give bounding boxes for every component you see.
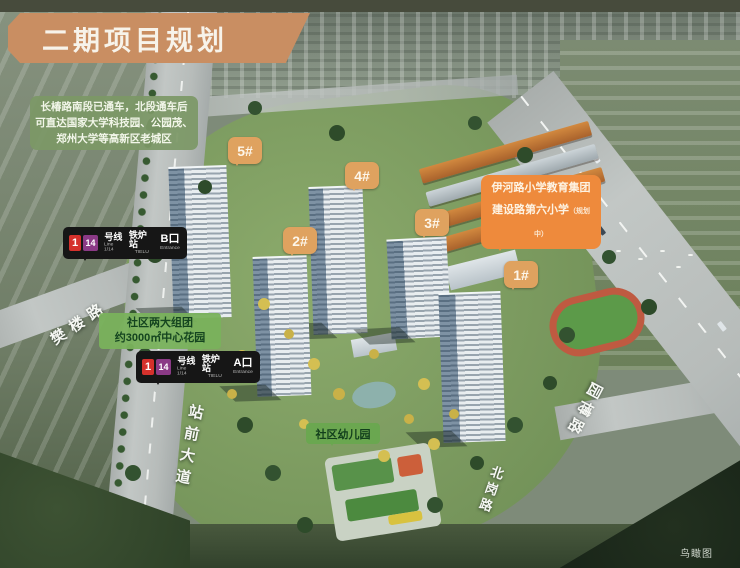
building-number: 4# — [354, 168, 370, 184]
metro-exit-b-label: 1 14 号线Line 1/14 铁炉站TIELU B口Entrance — [63, 227, 187, 259]
garden-callout-line1: 社区两大组团 — [99, 316, 221, 331]
school-callout: 伊河路小学教育集团 建设路第六小学（规划中） — [481, 175, 601, 249]
garden-callout: 社区两大组团 约3000㎡中心花园 — [99, 313, 221, 349]
kindergarten-building — [324, 442, 442, 542]
metro-station-en: TIELU — [207, 374, 221, 379]
kindergarten-roof — [331, 456, 394, 491]
metro-line-cn: 号线 — [177, 357, 195, 366]
metro-exit-en: Entrance — [233, 370, 253, 375]
building-number: 3# — [424, 215, 440, 231]
school-callout-line1: 伊河路小学教育集团 — [487, 181, 595, 197]
building-label-5: 5# — [228, 137, 262, 164]
page-title: 二期项目规划 — [8, 19, 228, 58]
tower-1 — [438, 291, 505, 443]
birds — [616, 250, 621, 252]
metro-line-en: Line 1/14 — [177, 367, 196, 377]
tower-2 — [253, 255, 312, 397]
metro-exit-cn: A口 — [234, 358, 253, 370]
metro-exit-cn: B口 — [161, 234, 180, 246]
view-caption: 鸟瞰图 — [680, 545, 713, 560]
callout-line: 郑州大学等高新区老城区 — [30, 131, 198, 147]
metro-station-en: TIELU — [134, 250, 148, 255]
aerial-view: 二期项目规划 长椿路南段已通车，北段通车后 可直达国家大学科技园、公园茂、 郑州… — [0, 0, 740, 568]
trees-autumn — [0, 0, 8, 8]
road-access-callout: 长椿路南段已通车，北段通车后 可直达国家大学科技园、公园茂、 郑州大学等高新区老… — [30, 96, 198, 150]
metro-line-cn: 号线 — [104, 233, 122, 242]
metro-line-en: Line 1/14 — [104, 243, 123, 253]
building-label-3: 3# — [415, 209, 449, 236]
building-number: 5# — [237, 143, 253, 159]
building-number: 1# — [513, 267, 529, 283]
metro-station-cn: 铁炉站 — [202, 355, 227, 374]
metro-exit-a-label: 1 14 号线Line 1/14 铁炉站TIELU A口Entrance — [136, 351, 260, 383]
building-label-4: 4# — [345, 162, 379, 189]
kindergarten-roof — [397, 454, 424, 478]
tower-4 — [308, 185, 367, 335]
kindergarten-callout-text: 社区幼儿园 — [316, 426, 371, 442]
line-14-badge: 14 — [156, 359, 171, 375]
garden-callout-line2: 约3000㎡中心花园 — [99, 331, 221, 346]
line-1-badge: 1 — [69, 235, 81, 251]
line-14-badge: 14 — [83, 235, 98, 251]
line-1-badge: 1 — [142, 359, 154, 375]
page-title-banner: 二期项目规划 — [8, 13, 310, 63]
building-label-2: 2# — [283, 227, 317, 254]
callout-line: 长椿路南段已通车，北段通车后 — [30, 99, 198, 115]
school-callout-line2: 建设路第六小学 — [492, 204, 569, 216]
callout-line: 可直达国家大学科技园、公园茂、 — [30, 115, 198, 131]
building-label-1: 1# — [504, 261, 538, 288]
car — [717, 321, 727, 332]
top-border-strip — [0, 0, 740, 12]
kindergarten-callout: 社区幼儿园 — [306, 423, 380, 444]
building-number: 2# — [292, 233, 308, 249]
metro-exit-en: Entrance — [160, 246, 180, 251]
metro-station-cn: 铁炉站 — [129, 231, 154, 250]
